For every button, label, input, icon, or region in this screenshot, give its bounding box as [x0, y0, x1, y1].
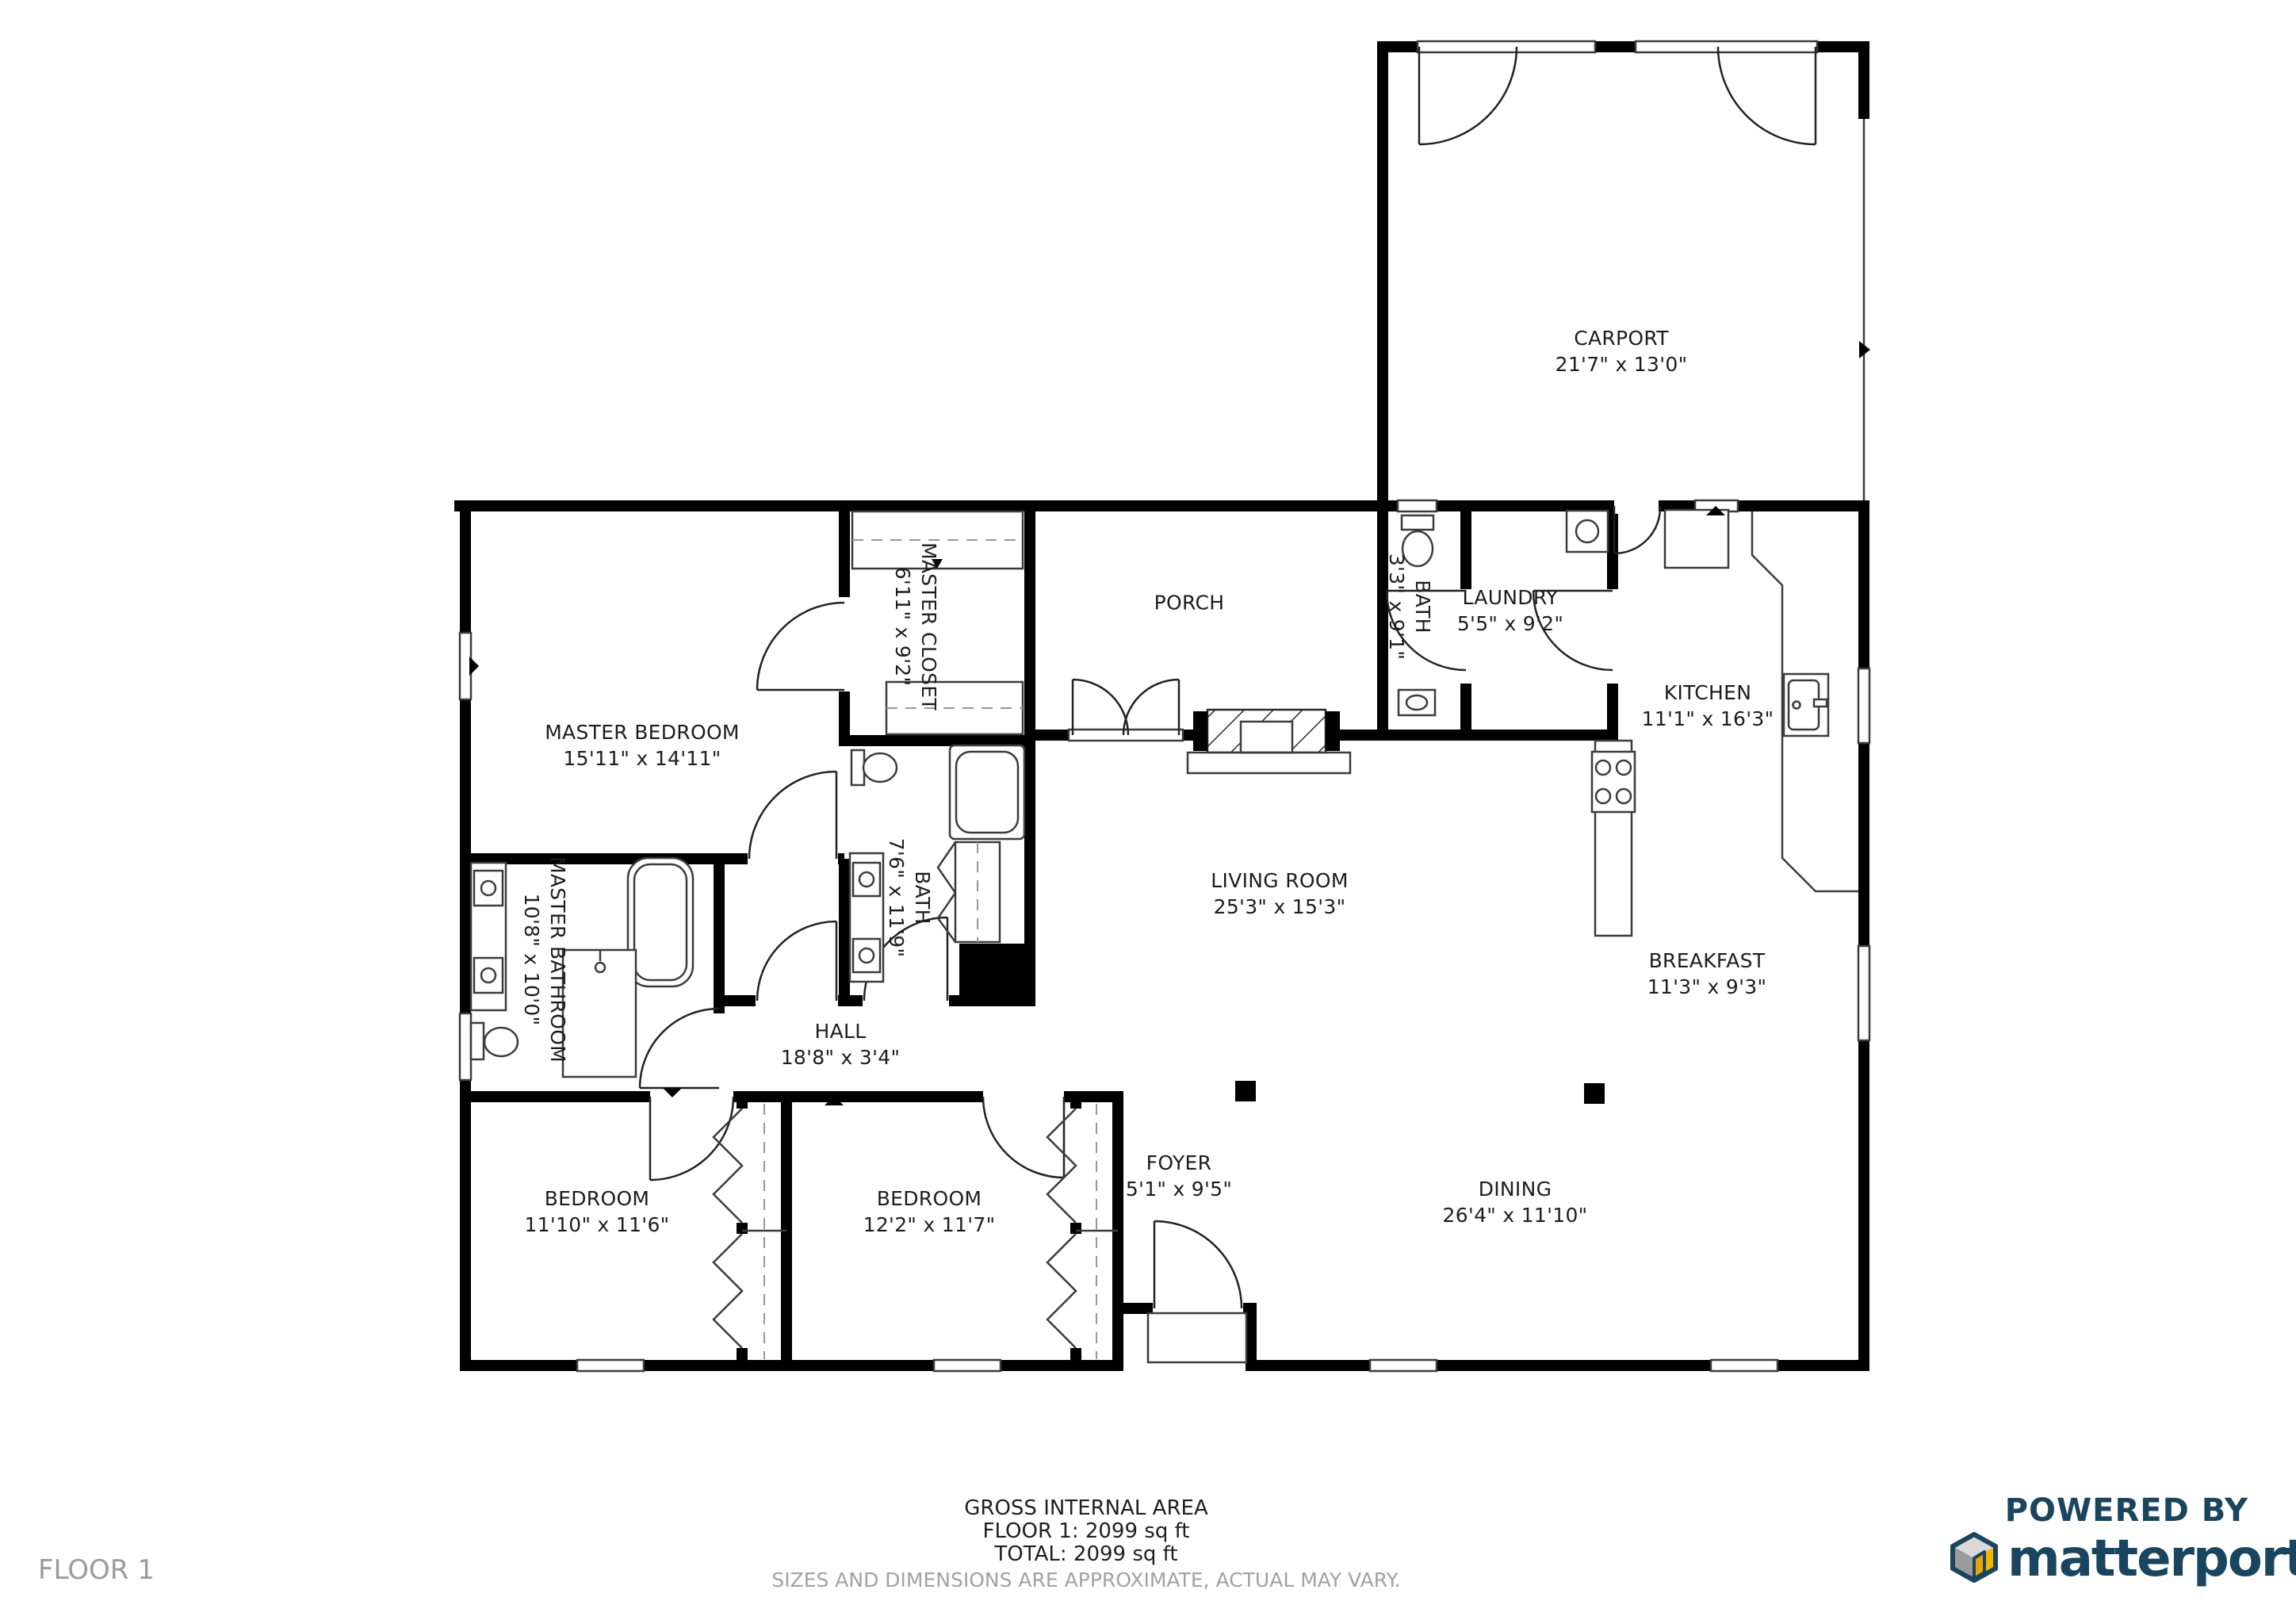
room-name: BATH	[1410, 553, 1436, 660]
room-label-porch: PORCH	[1154, 590, 1225, 616]
room-label-master-bathroom: MASTER BATHROOM 10'8" x 10'0"	[519, 856, 571, 1063]
room-name: BREAKFAST	[1647, 948, 1767, 974]
room-dims: 11'10" x 11'6"	[525, 1212, 670, 1238]
room-label-master-closet: MASTER CLOSET 6'11" x 9'2"	[890, 542, 942, 710]
floor-selector-label[interactable]: FLOOR 1	[38, 1554, 155, 1586]
room-dims: 7'6" x 11'9"	[883, 838, 909, 958]
room-dims: 15'11" x 14'11"	[545, 745, 740, 772]
disclaimer-text: SIZES AND DIMENSIONS ARE APPROXIMATE, AC…	[771, 1568, 1400, 1591]
room-label-breakfast: BREAKFAST 11'3" x 9'3"	[1647, 948, 1767, 1000]
gross-area-title: GROSS INTERNAL AREA	[771, 1497, 1400, 1520]
room-label-bath: BATH 7'6" x 11'9"	[883, 838, 936, 958]
room-label-kitchen: KITCHEN 11'1" x 16'3"	[1642, 680, 1774, 732]
floor-area-line: FLOOR 1: 2099 sq ft	[771, 1520, 1400, 1543]
room-dims: 12'2" x 11'7"	[863, 1212, 996, 1238]
room-label-dining: DINING 26'4" x 11'10"	[1443, 1176, 1588, 1228]
room-name: MASTER BATHROOM	[545, 856, 571, 1063]
room-name: KITCHEN	[1642, 680, 1774, 706]
room-name: FOYER	[1126, 1150, 1232, 1176]
room-label-master-bedroom: MASTER BEDROOM 15'11" x 14'11"	[545, 719, 740, 772]
room-name: MASTER CLOSET	[916, 542, 942, 710]
room-dims: 21'7" x 13'0"	[1556, 351, 1688, 377]
room-name: LAUNDRY	[1457, 584, 1563, 611]
room-label-hall: HALL 18'8" x 3'4"	[781, 1018, 901, 1071]
total-area-line: TOTAL: 2099 sq ft	[771, 1543, 1400, 1566]
room-name: LIVING ROOM	[1211, 868, 1348, 894]
doors-layer	[640, 47, 1816, 1308]
room-dims: 11'1" x 16'3"	[1642, 706, 1774, 732]
room-name: MASTER BEDROOM	[545, 719, 740, 745]
matterport-branding: POWERED BY matterport ®	[1949, 1492, 2282, 1588]
room-label-living-room: LIVING ROOM 25'3" x 15'3"	[1211, 868, 1348, 920]
area-summary: GROSS INTERNAL AREA FLOOR 1: 2099 sq ft …	[771, 1497, 1400, 1591]
room-label-bath-small: BATH 3'3" x 9'1"	[1383, 553, 1436, 660]
room-dims: 11'3" x 9'3"	[1647, 974, 1767, 1000]
room-name: BATH	[909, 838, 936, 958]
floorplan-page: CARPORT 21'7" x 13'0" MASTER BEDROOM 15'…	[0, 0, 2296, 1624]
matterport-cube-icon	[1949, 1530, 1999, 1588]
powered-by-text: POWERED BY	[1949, 1492, 2282, 1529]
floor-plan-canvas	[0, 0, 2296, 1624]
room-name: DINING	[1443, 1176, 1588, 1202]
room-label-foyer: FOYER 5'1" x 9'5"	[1126, 1150, 1232, 1202]
room-name: HALL	[781, 1018, 901, 1044]
room-dims: 26'4" x 11'10"	[1443, 1202, 1588, 1228]
room-dims: 6'11" x 9'2"	[890, 542, 916, 710]
room-name: BEDROOM	[863, 1185, 996, 1212]
room-name: BEDROOM	[525, 1185, 670, 1212]
room-dims: 18'8" x 3'4"	[781, 1044, 901, 1071]
room-name: PORCH	[1154, 590, 1225, 616]
room-label-bedroom-left: BEDROOM 11'10" x 11'6"	[525, 1185, 670, 1238]
room-label-laundry: LAUNDRY 5'5" x 9'2"	[1457, 584, 1563, 637]
room-dims: 25'3" x 15'3"	[1211, 894, 1348, 920]
room-label-carport: CARPORT 21'7" x 13'0"	[1556, 325, 1688, 377]
room-dims: 10'8" x 10'0"	[519, 856, 545, 1063]
room-dims: 5'1" x 9'5"	[1126, 1176, 1232, 1202]
room-dims: 3'3" x 9'1"	[1383, 553, 1410, 660]
room-dims: 5'5" x 9'2"	[1457, 611, 1563, 637]
room-name: CARPORT	[1556, 325, 1688, 351]
room-label-bedroom-mid: BEDROOM 12'2" x 11'7"	[863, 1185, 996, 1238]
brand-name: matterport	[2007, 1534, 2296, 1584]
